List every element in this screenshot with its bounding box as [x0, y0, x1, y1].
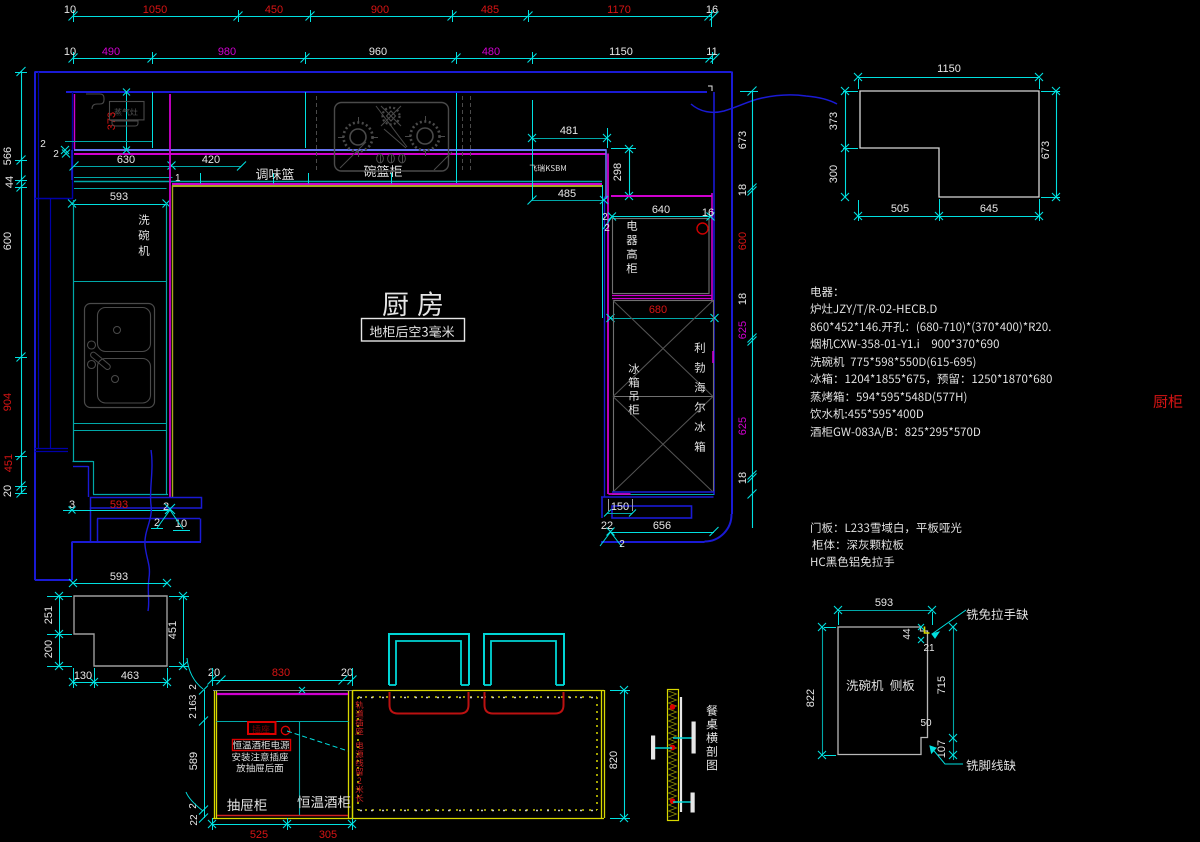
svg-text:450: 450 — [265, 4, 283, 16]
svg-text:505: 505 — [891, 203, 909, 215]
svg-text:593: 593 — [110, 499, 128, 511]
svg-text:10: 10 — [64, 4, 76, 16]
svg-text:680: 680 — [649, 304, 667, 316]
svg-text:130: 130 — [74, 670, 92, 682]
svg-text:50: 50 — [920, 718, 932, 729]
svg-text:900: 900 — [371, 4, 389, 16]
svg-text:2: 2 — [604, 223, 610, 234]
svg-text:625: 625 — [737, 417, 749, 435]
svg-text:904: 904 — [2, 393, 14, 411]
svg-text:18: 18 — [737, 293, 749, 305]
svg-text:163: 163 — [188, 694, 199, 711]
svg-text:566: 566 — [2, 147, 14, 165]
svg-text:451: 451 — [167, 621, 179, 639]
svg-text:656: 656 — [653, 520, 671, 532]
svg-text:589: 589 — [188, 752, 200, 770]
svg-text:593: 593 — [110, 571, 128, 583]
svg-text:830: 830 — [272, 667, 290, 679]
svg-text:298: 298 — [612, 163, 624, 181]
svg-text:645: 645 — [980, 203, 998, 215]
svg-text:715: 715 — [936, 676, 948, 694]
svg-text:2: 2 — [53, 149, 59, 160]
svg-text:2: 2 — [188, 713, 199, 719]
svg-text:22: 22 — [189, 814, 200, 826]
svg-text:44: 44 — [4, 176, 16, 188]
svg-text:485: 485 — [558, 188, 576, 200]
svg-text:20: 20 — [208, 667, 220, 679]
svg-text:200: 200 — [43, 640, 55, 658]
svg-text:10: 10 — [64, 46, 76, 58]
svg-text:21: 21 — [923, 643, 935, 654]
svg-text:593: 593 — [875, 597, 893, 609]
svg-text:305: 305 — [319, 829, 337, 841]
svg-text:18: 18 — [737, 184, 749, 196]
svg-text:673: 673 — [1040, 141, 1052, 159]
svg-text:22: 22 — [601, 520, 613, 532]
svg-text:2: 2 — [188, 684, 199, 690]
svg-text:1050: 1050 — [143, 4, 167, 16]
svg-text:16: 16 — [706, 4, 718, 16]
svg-text:600: 600 — [2, 232, 14, 250]
svg-text:1170: 1170 — [607, 4, 631, 16]
svg-text:820: 820 — [608, 751, 620, 769]
svg-text:980: 980 — [218, 46, 236, 58]
svg-text:960: 960 — [369, 46, 387, 58]
svg-text:1150: 1150 — [609, 46, 633, 58]
svg-text:300: 300 — [828, 165, 840, 183]
svg-text:2: 2 — [619, 539, 625, 550]
svg-text:593: 593 — [110, 191, 128, 203]
svg-text:20: 20 — [341, 667, 353, 679]
svg-text:1: 1 — [175, 173, 181, 184]
svg-text:20: 20 — [2, 485, 14, 497]
svg-text:16: 16 — [702, 207, 714, 219]
svg-text:150: 150 — [611, 501, 629, 513]
svg-text:625: 625 — [737, 321, 749, 339]
svg-text:3: 3 — [69, 499, 75, 511]
svg-text:481: 481 — [560, 125, 578, 137]
svg-text:600: 600 — [737, 232, 749, 250]
svg-text:673: 673 — [737, 131, 749, 149]
svg-text:485: 485 — [481, 4, 499, 16]
svg-text:525: 525 — [250, 829, 268, 841]
svg-text:2: 2 — [40, 139, 46, 150]
svg-text:1150: 1150 — [937, 63, 961, 75]
svg-text:822: 822 — [805, 689, 817, 707]
svg-text:44: 44 — [902, 628, 913, 640]
svg-text:640: 640 — [652, 204, 670, 216]
svg-text:11: 11 — [706, 46, 717, 58]
svg-text:490: 490 — [102, 46, 120, 58]
svg-text:2: 2 — [602, 212, 608, 223]
svg-text:373: 373 — [828, 112, 840, 130]
svg-text:630: 630 — [117, 154, 135, 166]
svg-text:18: 18 — [737, 472, 749, 484]
svg-text:451: 451 — [3, 454, 15, 472]
svg-text:251: 251 — [43, 606, 55, 624]
svg-text:420: 420 — [202, 154, 220, 166]
svg-text:463: 463 — [121, 670, 139, 682]
svg-text:480: 480 — [482, 46, 500, 58]
